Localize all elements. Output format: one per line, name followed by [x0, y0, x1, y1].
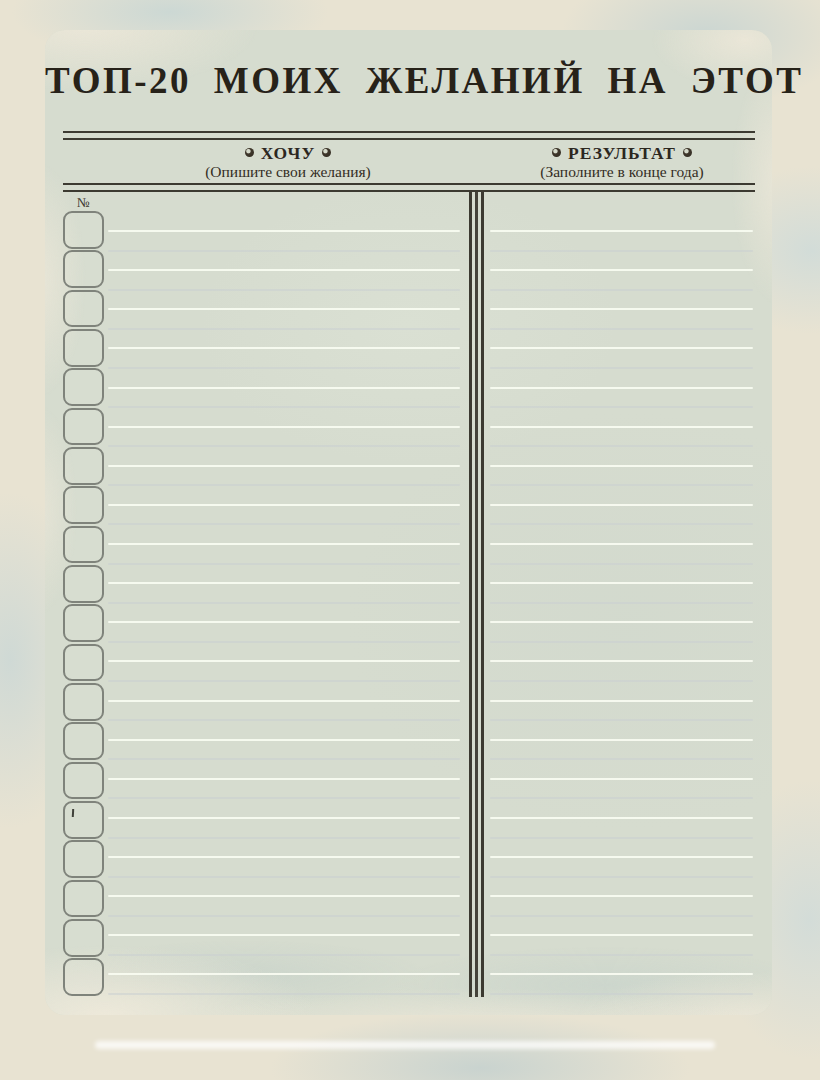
writing-line — [108, 367, 460, 369]
scanned-journal-page: ТОП-20 МОИХ ЖЕЛАНИЙ НА ЭТОТ ГОД ХОЧУ (Оп… — [0, 0, 820, 1080]
want-cell[interactable] — [112, 919, 464, 958]
want-cell[interactable] — [112, 644, 464, 683]
writing-line — [490, 719, 753, 721]
stray-pen-mark — [72, 809, 74, 817]
column-divider-line — [481, 192, 484, 997]
paper-scratch-streak — [95, 1041, 715, 1049]
writing-line — [490, 876, 753, 878]
wish-number-box[interactable] — [63, 250, 104, 288]
writing-line — [108, 387, 460, 389]
writing-line — [108, 445, 460, 447]
want-cell[interactable] — [112, 604, 464, 643]
writing-line — [490, 230, 753, 232]
wish-number-box[interactable] — [63, 683, 104, 721]
want-cell[interactable] — [112, 526, 464, 565]
writing-line — [490, 465, 753, 467]
writing-line — [490, 269, 753, 271]
wish-number-box[interactable] — [63, 329, 104, 367]
writing-line — [490, 445, 753, 447]
wish-number-box[interactable] — [63, 604, 104, 642]
want-cell[interactable] — [112, 958, 464, 997]
writing-line — [108, 778, 460, 780]
writing-line — [108, 230, 460, 232]
wish-number-box[interactable] — [63, 840, 104, 878]
wish-number-box[interactable] — [63, 565, 104, 603]
page-title: ТОП-20 МОИХ ЖЕЛАНИЙ НА ЭТОТ ГОД — [45, 59, 772, 102]
writing-line — [108, 993, 460, 995]
want-cell[interactable] — [112, 565, 464, 604]
wish-number-box[interactable] — [63, 526, 104, 564]
writing-line — [490, 582, 753, 584]
writing-line — [490, 817, 753, 819]
writing-line — [490, 406, 753, 408]
writing-line — [108, 817, 460, 819]
result-column-header: РЕЗУЛЬТАТ (Заполните в конце года) — [490, 143, 754, 181]
writing-line — [108, 915, 460, 917]
wish-number-box[interactable] — [63, 290, 104, 328]
column-divider-line — [475, 192, 478, 997]
result-cell[interactable] — [490, 683, 754, 722]
wish-number-box[interactable] — [63, 644, 104, 682]
writing-line — [108, 504, 460, 506]
writing-line — [490, 328, 753, 330]
writing-line — [490, 856, 753, 858]
rosette-icon — [322, 148, 331, 157]
writing-line — [108, 954, 460, 956]
writing-line — [108, 582, 460, 584]
writing-line — [108, 269, 460, 271]
writing-line — [490, 778, 753, 780]
column-divider-line — [469, 192, 472, 997]
writing-line — [490, 250, 753, 252]
result-cell[interactable] — [490, 762, 754, 801]
result-cell[interactable] — [490, 722, 754, 761]
want-cell[interactable] — [112, 486, 464, 525]
wish-number-box[interactable] — [63, 722, 104, 760]
header-double-rule — [63, 183, 755, 192]
writing-line — [490, 543, 753, 545]
result-cell[interactable] — [490, 880, 754, 919]
writing-line — [490, 602, 753, 604]
writing-line — [108, 739, 460, 741]
wish-number-box[interactable] — [63, 958, 104, 996]
want-column-header: ХОЧУ (Опишите свои желания) — [112, 143, 464, 181]
writing-line — [108, 876, 460, 878]
want-cell[interactable] — [112, 840, 464, 879]
writing-line — [490, 641, 753, 643]
writing-line — [490, 837, 753, 839]
writing-line — [108, 308, 460, 310]
result-cell[interactable] — [490, 486, 754, 525]
wish-number-box[interactable] — [63, 919, 104, 957]
writing-line — [108, 719, 460, 721]
writing-line — [108, 621, 460, 623]
writing-line — [490, 426, 753, 428]
writing-line — [490, 739, 753, 741]
want-cell[interactable] — [112, 722, 464, 761]
writing-line — [108, 856, 460, 858]
result-cell[interactable] — [490, 919, 754, 958]
wish-number-box[interactable] — [63, 368, 104, 406]
writing-line — [108, 563, 460, 565]
writing-line — [490, 680, 753, 682]
rosette-icon — [245, 148, 254, 157]
rosette-icon — [683, 148, 692, 157]
writing-line — [490, 993, 753, 995]
writing-line — [108, 328, 460, 330]
want-cell[interactable] — [112, 762, 464, 801]
writing-line — [490, 954, 753, 956]
result-cell[interactable] — [490, 958, 754, 997]
result-column-subtitle: (Заполните в конце года) — [490, 163, 754, 181]
paper-sheet: ТОП-20 МОИХ ЖЕЛАНИЙ НА ЭТОТ ГОД ХОЧУ (Оп… — [45, 30, 772, 1015]
result-cell[interactable] — [490, 565, 754, 604]
writing-line — [108, 680, 460, 682]
writing-line — [490, 367, 753, 369]
wish-number-box[interactable] — [63, 447, 104, 485]
want-column-subtitle: (Опишите свои желания) — [112, 163, 464, 181]
want-cell[interactable] — [112, 880, 464, 919]
writing-line — [490, 504, 753, 506]
result-column-title: РЕЗУЛЬТАТ — [490, 143, 754, 163]
result-cell[interactable] — [490, 604, 754, 643]
want-cell[interactable] — [112, 801, 464, 840]
writing-line — [108, 602, 460, 604]
want-column-title: ХОЧУ — [112, 143, 464, 163]
writing-line — [490, 289, 753, 291]
wish-number-box[interactable] — [63, 486, 104, 524]
writing-line — [490, 700, 753, 702]
want-cell[interactable] — [112, 683, 464, 722]
wish-number-box[interactable] — [63, 880, 104, 918]
writing-line — [108, 426, 460, 428]
wish-number-box[interactable] — [63, 762, 104, 800]
writing-line — [108, 895, 460, 897]
writing-line — [490, 895, 753, 897]
wish-number-box[interactable] — [63, 211, 104, 249]
writing-line — [108, 465, 460, 467]
result-cell[interactable] — [490, 801, 754, 840]
number-column-header: № — [63, 195, 104, 211]
wish-number-box[interactable] — [63, 408, 104, 446]
writing-line — [108, 758, 460, 760]
result-cell[interactable] — [490, 526, 754, 565]
writing-line — [490, 621, 753, 623]
writing-line — [490, 563, 753, 565]
writing-line — [490, 758, 753, 760]
want-column-label: ХОЧУ — [261, 143, 316, 163]
writing-line — [108, 700, 460, 702]
writing-line — [108, 641, 460, 643]
writing-line — [490, 308, 753, 310]
writing-line — [108, 837, 460, 839]
result-cell[interactable] — [490, 644, 754, 683]
writing-line — [108, 289, 460, 291]
wish-number-box[interactable] — [63, 801, 104, 839]
writing-line — [108, 543, 460, 545]
result-cell[interactable] — [490, 840, 754, 879]
rosette-icon — [552, 148, 561, 157]
writing-line — [108, 406, 460, 408]
top-double-rule — [63, 131, 755, 140]
writing-line — [490, 387, 753, 389]
result-column-label: РЕЗУЛЬТАТ — [568, 143, 676, 163]
writing-line — [490, 915, 753, 917]
writing-line — [108, 250, 460, 252]
